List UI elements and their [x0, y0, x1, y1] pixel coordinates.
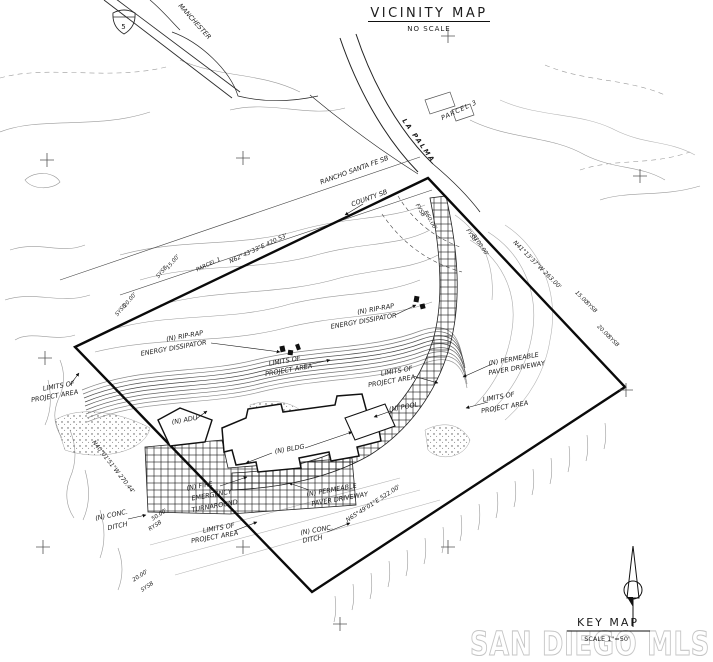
setback-20-sysb-bottom-tag: SYSB [140, 581, 155, 594]
parcel-1-label: PARCEL 1 [195, 257, 221, 274]
bearing-right: N41°13'37"W 263.00' [511, 239, 562, 290]
setback-lines [60, 157, 462, 295]
north-arrow-icon [624, 546, 642, 627]
setback-20-sysb-right-tag: SYSB [606, 334, 620, 348]
grid-reference-crosses [36, 29, 647, 631]
setback-r100-dim: R100.00' [470, 234, 489, 258]
interstate-5-shield-number: 5 [121, 23, 126, 31]
conc-ditch-left-line2: DITCH [107, 520, 129, 532]
key-map-block: KEY MAP SCALE 1"=50' [567, 546, 650, 643]
key-map-title: KEY MAP [577, 616, 639, 629]
vicinity-sketch [104, 0, 318, 101]
street-label-rancho-santa-fe-sb: RANCHO SANTA FE SB [319, 154, 390, 186]
slope-hatch-ticks [334, 423, 606, 622]
map-labels: RANCHO SANTA FE SB COUNTY SB LA PALMA PA… [30, 98, 619, 593]
key-map-scale: SCALE 1"=50' [584, 635, 630, 643]
setback-20-sysb-bottom-dim: 20.00' [132, 569, 150, 583]
setback-50-rysb-tag: RYSB [148, 520, 164, 533]
setback-15-sysb-right-tag: SYSB [584, 300, 598, 314]
site-plan-drawing: 5 MANCHESTER VICINITY MAP NO SCALE [0, 0, 713, 662]
street-label-manchester: MANCHESTER [177, 2, 213, 41]
sheet-title-scale: NO SCALE [407, 25, 450, 33]
sheet-title: VICINITY MAP [370, 6, 487, 21]
road-lines [310, 34, 480, 212]
watermark: SAN DIEGO MLS [470, 624, 710, 662]
site-plan-sheet: 5 MANCHESTER VICINITY MAP NO SCALE [0, 0, 713, 662]
